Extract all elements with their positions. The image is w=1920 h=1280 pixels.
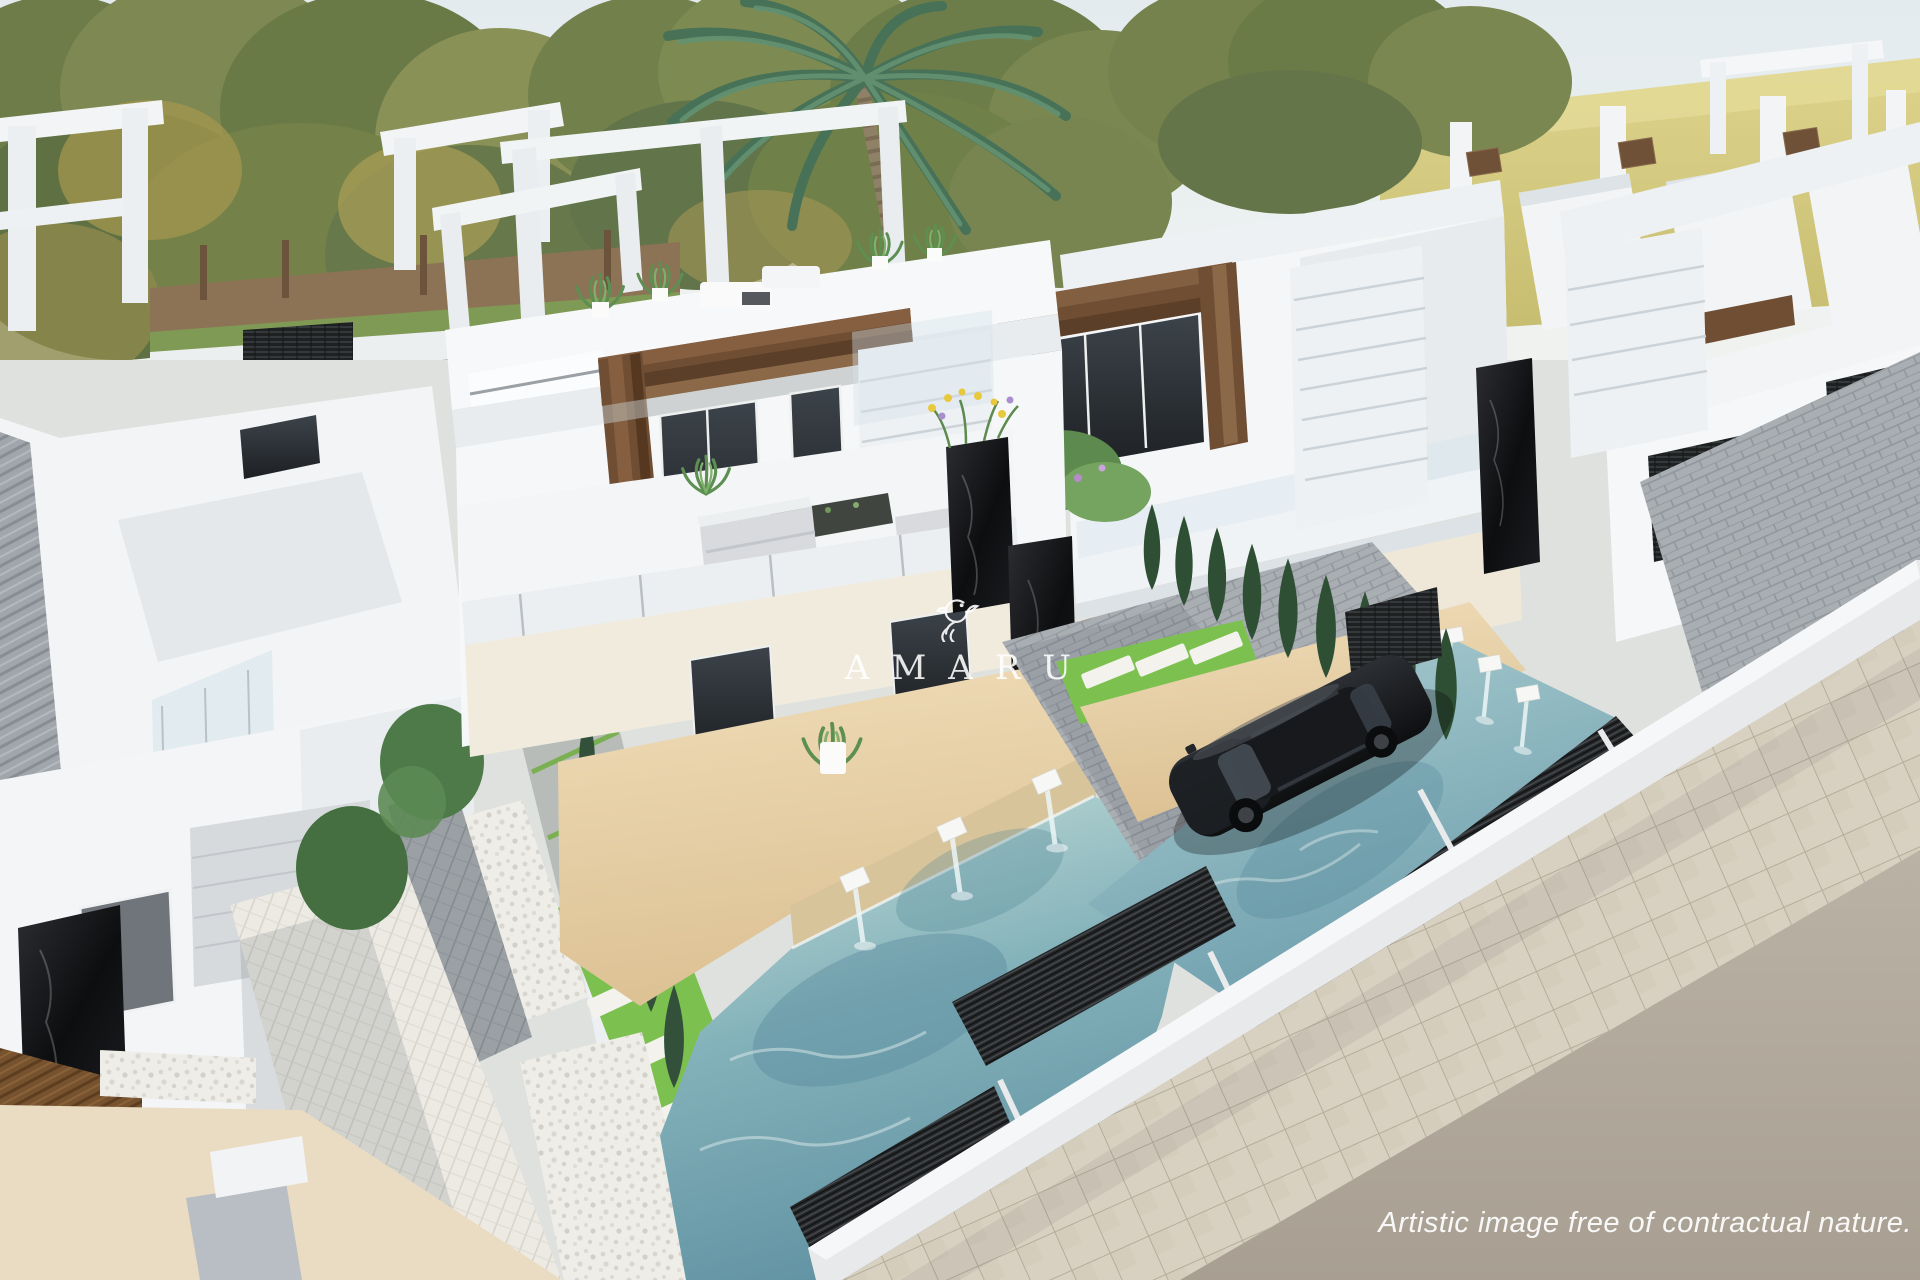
staircase bbox=[1565, 228, 1708, 458]
scene-svg bbox=[0, 0, 1920, 1280]
caption-text: Artistic image free of contractual natur… bbox=[1378, 1207, 1912, 1240]
marble-pillar bbox=[1476, 358, 1540, 574]
render-image: AMARU Artistic image free of contractual… bbox=[0, 0, 1920, 1280]
staircase bbox=[1290, 246, 1428, 530]
